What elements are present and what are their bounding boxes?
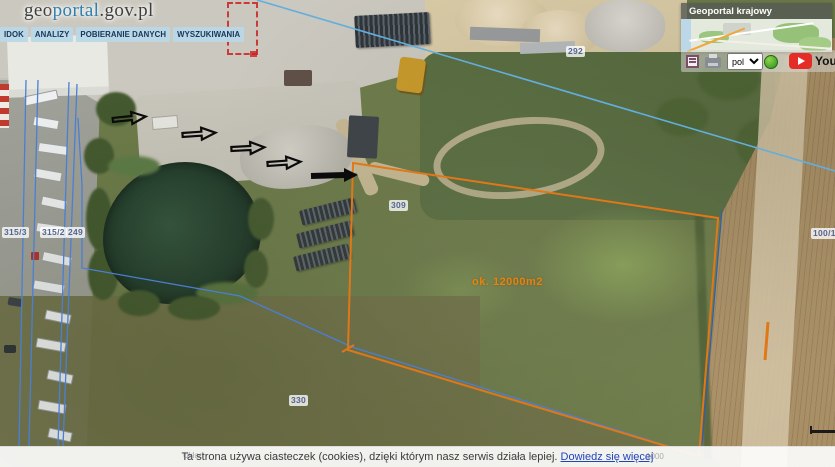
print-icon-slot	[708, 63, 718, 66]
youtube-link[interactable]: YouTube	[789, 53, 835, 69]
annotation-arrow	[112, 111, 146, 126]
youtube-label: YouTube	[815, 54, 835, 68]
main-menu: IDOK ANALIZY POBIERANIE DANYCH WYSZUKIWA…	[0, 27, 244, 42]
parcel-label: 330	[289, 395, 308, 406]
cookie-more-link[interactable]: Dowiedz się więcej	[561, 451, 654, 463]
scale-value-text: 1000	[646, 452, 664, 461]
area-measurement-label: ok. 12000m2	[472, 276, 543, 288]
parcel-label: 309	[389, 200, 408, 211]
logo-part-geo: geo	[24, 0, 53, 21]
scale-bar	[810, 430, 835, 433]
overview-minimap-title: Geoportal krajowy	[681, 3, 832, 19]
orange-dash-mark	[765, 322, 768, 360]
coord-system-hint: Układ	[183, 451, 203, 460]
parcel-label: 249	[66, 227, 85, 238]
menu-item-widok[interactable]: IDOK	[0, 27, 28, 42]
selection-rectangle-corner	[250, 51, 257, 57]
overview-minimap[interactable]: Geoportal krajowy	[681, 3, 832, 52]
annotation-arrow	[182, 127, 216, 141]
parcel-label: 100/1	[811, 228, 835, 239]
parcel-label: 292	[566, 46, 585, 57]
annotation-arrow-solid	[311, 168, 358, 182]
menu-item-pobieranie[interactable]: POBIERANIE DANYCH	[76, 27, 170, 42]
overview-minimap-canvas	[681, 19, 832, 52]
cookie-message: Ta strona używa ciasteczek (cookies), dz…	[182, 451, 558, 463]
menu-item-wyszukiwania[interactable]: WYSZUKIWANIA	[173, 27, 244, 42]
logo-part-suffix: .gov.pl	[99, 0, 153, 21]
geoportal-logo[interactable]: geoportal.gov.pl	[24, 0, 154, 22]
scale-bar-tick	[810, 426, 812, 434]
parcel-label: 315/3	[2, 227, 29, 238]
parcel-label: 315/2	[40, 227, 67, 238]
language-select[interactable]: pol	[727, 53, 763, 70]
legend-icon[interactable]	[686, 55, 699, 68]
annotation-arrow	[231, 141, 265, 155]
minimap-water	[681, 19, 691, 52]
parcel-line-dark-blue	[701, 210, 722, 456]
print-icon[interactable]	[705, 57, 721, 68]
cookie-banner: Układ 1000 Ta strona używa ciasteczek (c…	[0, 446, 835, 467]
logo-part-portal: portal	[53, 0, 100, 21]
geoportal-window: 292 309 330 315/3 315/2 249 100/1 ok. 12…	[0, 0, 835, 467]
parcel-lines-blue	[19, 80, 700, 456]
print-icon-paper	[709, 54, 717, 58]
menu-item-analizy[interactable]: ANALIZY	[31, 27, 73, 42]
youtube-play-icon	[789, 53, 812, 69]
help-icon[interactable]	[764, 55, 778, 69]
annotation-arrow	[267, 156, 301, 170]
